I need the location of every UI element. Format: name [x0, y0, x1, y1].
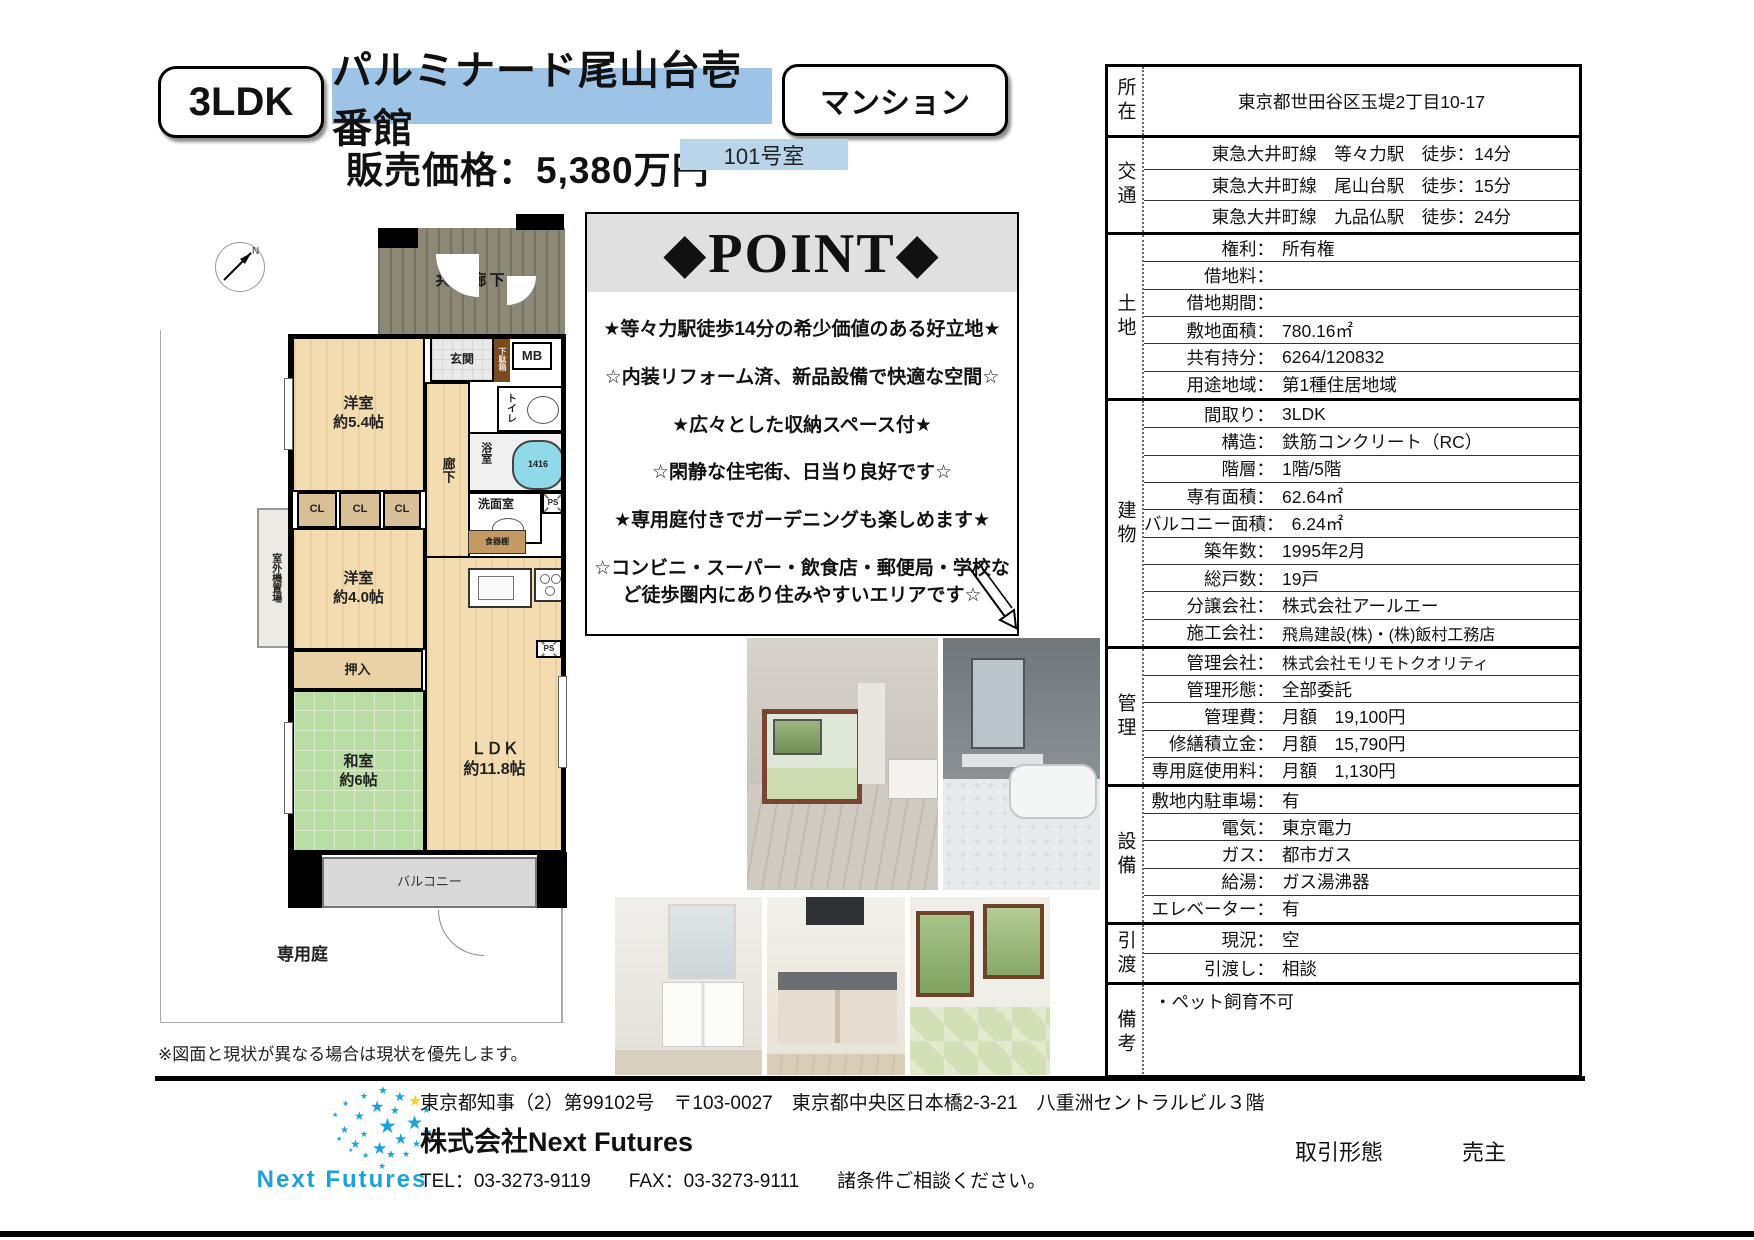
wall-column — [288, 852, 322, 908]
table-row: 分譲会社：株式会社アールエー — [1144, 591, 1579, 618]
logo-text: Next Futures — [242, 1166, 442, 1194]
row-label: 敷地面積： — [1144, 318, 1274, 343]
toilet-icon — [527, 396, 559, 424]
washitsu-label: 和室 — [343, 753, 373, 770]
star-icon: ★ — [402, 1150, 410, 1159]
flyer-page: 3LDK パルミナード尾山台壱番館 マンション 販売価格：5,380万円 101… — [0, 0, 1754, 1240]
row-value: 株式会社モリモトクオリティ — [1274, 650, 1579, 674]
closet: CL — [297, 492, 337, 528]
meter-box: MB — [512, 342, 552, 370]
spec-group-label: 建物 — [1108, 401, 1144, 646]
burner-icon — [545, 586, 555, 596]
row-label: 現況： — [1144, 927, 1274, 952]
table-row: 総戸数：19戸 — [1144, 564, 1579, 591]
spec-group-label: 引渡 — [1108, 925, 1144, 982]
photo-bathroom — [943, 638, 1100, 890]
spec-group-管理: 管理管理会社：株式会社モリモトクオリティ管理形態：全部委託管理費：月額 19,1… — [1108, 646, 1579, 784]
row-value: 株式会社アールエー — [1274, 593, 1579, 618]
row-value: 6264/120832 — [1274, 347, 1579, 368]
dish-shelf: 食器棚 — [468, 530, 526, 554]
table-row: ・ペット飼育不可 — [1144, 985, 1579, 1081]
row-text: 東急大井町線 尾山台駅 徒歩：15分 — [1212, 173, 1511, 198]
closet-label: CL — [395, 503, 410, 517]
row-label: 借地料： — [1144, 263, 1274, 288]
closet-label: CL — [310, 503, 325, 517]
footer-divider — [155, 1076, 1585, 1081]
point-item: ☆コンビニ・スーパー・飲食店・郵便局・学校など徒歩圏内にあり住みやすいエリアです… — [593, 555, 1011, 610]
photo-kitchen — [767, 897, 905, 1075]
spec-group-設備: 設備敷地内駐車場：有電気：東京電力ガス：都市ガス給湯：ガス湯沸器エレベーター：有 — [1108, 784, 1579, 922]
spec-group-label: 所在 — [1108, 67, 1144, 135]
row-label: 敷地内駐車場： — [1144, 788, 1274, 813]
photo-wash-mirror — [668, 904, 736, 979]
bedroom1-label: 洋室 — [343, 395, 373, 412]
row-label: 引渡し： — [1144, 956, 1274, 981]
point-item: ☆閑静な住宅街、日当り良好です☆ — [593, 459, 1011, 487]
row-value: ガス湯沸器 — [1274, 869, 1579, 894]
row-label: 分譲会社： — [1144, 593, 1274, 618]
row-label: 総戸数： — [1144, 566, 1274, 591]
row-label: 権利： — [1144, 236, 1274, 261]
hallway-label: 廊下 — [439, 457, 455, 483]
toilet-label: トイレ — [503, 393, 516, 423]
row-value: 鉄筋コンクリート（RC） — [1274, 429, 1579, 454]
wall-column — [537, 852, 567, 908]
photo-cabinet-doors — [778, 990, 897, 1043]
outdoor-unit-space: 室外機置場 — [257, 508, 292, 648]
kitchen-sink-counter — [468, 568, 532, 608]
point-title: ◆POINT◆ — [587, 214, 1017, 292]
row-text: 東急大井町線 九品仏駅 徒歩：24分 — [1212, 204, 1511, 229]
table-row: 管理費：月額 19,100円 — [1144, 702, 1579, 729]
table-row: 現況：空 — [1144, 925, 1579, 953]
bedroom2-size: 約4.0帖 — [333, 589, 384, 606]
remarks-text: ・ペット飼育不可 — [1154, 989, 1294, 1014]
photo-wash-floor — [615, 1050, 762, 1075]
burner-icon — [540, 574, 550, 584]
table-row: 管理形態：全部委託 — [1144, 675, 1579, 702]
row-label: 電気： — [1144, 815, 1274, 840]
deal-type-value: 売主 — [1462, 1135, 1506, 1167]
row-label: 構造： — [1144, 429, 1274, 454]
table-row: 引渡し：相談 — [1144, 953, 1579, 982]
photo-door — [858, 683, 885, 784]
row-value: 全部委託 — [1274, 677, 1579, 702]
photo-tatami-room — [910, 897, 1050, 1075]
row-value: 19戸 — [1274, 566, 1579, 591]
photo-bathtub — [1009, 764, 1097, 819]
table-row: 共有持分：6264/120832 — [1144, 343, 1579, 370]
wall-column — [378, 228, 418, 248]
oshiire-label: 押入 — [344, 662, 370, 678]
row-label: 用途地域： — [1144, 372, 1274, 397]
balcony-label: バルコニー — [397, 874, 462, 890]
star-icon: ★ — [342, 1100, 349, 1108]
photo-window — [773, 719, 822, 755]
star-icon: ★ — [378, 1086, 388, 1097]
table-row: バルコニー面積：6.24㎡ — [1144, 509, 1579, 536]
table-row: 東急大井町線 尾山台駅 徒歩：15分 — [1144, 169, 1579, 201]
compass-icon: N — [215, 242, 265, 292]
private-garden-label: 専用庭 — [277, 944, 328, 965]
floor-plan: N 共用廊下 洋室 約5.4帖 玄関 下駄箱 MB トイレ — [155, 196, 575, 1076]
table-row: ガス：都市ガス — [1144, 840, 1579, 867]
photo-tatami-floor — [767, 768, 856, 799]
star-icon: ★ — [332, 1112, 338, 1119]
row-value: 6.24㎡ — [1284, 511, 1579, 536]
property-type-badge: マンション — [782, 64, 1008, 136]
hallway: 廊下 — [425, 382, 470, 558]
row-value: 東京電力 — [1274, 815, 1579, 840]
closet-label: CL — [353, 503, 368, 517]
row-label: 借地期間： — [1144, 290, 1274, 315]
row-text: 東京都世田谷区玉堤2丁目10-17 — [1238, 89, 1485, 114]
closet: CL — [339, 492, 381, 528]
table-row: 施工会社：飛鳥建設(株)・(株)飯村工務店 — [1144, 619, 1579, 646]
row-label: 階層： — [1144, 456, 1274, 481]
row-label: ガス： — [1144, 842, 1274, 867]
dish-shelf-label: 食器棚 — [485, 537, 509, 547]
table-row: 築年数：1995年2月 — [1144, 537, 1579, 564]
star-icon: ★ — [340, 1126, 349, 1136]
star-icon: ★ — [336, 1136, 342, 1143]
row-value: 月額 15,790円 — [1274, 731, 1579, 756]
photo-tatami-mat — [910, 1007, 1050, 1075]
price: 販売価格：5,380万円 — [346, 140, 710, 194]
row-label: 施工会社： — [1144, 620, 1274, 645]
pipe-space: PS — [542, 492, 564, 514]
row-value: 780.16㎡ — [1274, 318, 1579, 343]
photo-window-left — [916, 911, 975, 996]
outdoor-unit-label: 室外機置場 — [268, 553, 281, 603]
photo-wash-cabinet — [662, 982, 744, 1046]
balcony: バルコニー — [322, 857, 537, 908]
row-label: 築年数： — [1144, 538, 1274, 563]
wall-column — [516, 214, 564, 230]
deal-type-label: 取引形態 — [1295, 1135, 1383, 1167]
star-icon: ★ — [386, 1150, 396, 1161]
row-label: エレベーター： — [1144, 896, 1274, 921]
spec-group-所在: 所在東京都世田谷区玉堤2丁目10-17 — [1108, 67, 1579, 135]
photo-tatami-alcove — [762, 709, 861, 805]
property-spec-table: 所在東京都世田谷区玉堤2丁目10-17交通東急大井町線 等々力駅 徒歩：14分東… — [1105, 64, 1582, 1078]
table-row: 修繕積立金：月額 15,790円 — [1144, 730, 1579, 757]
point-box: ◆POINT◆ ★等々力駅徒歩14分の希少価値のある好立地★☆内装リフォーム済、… — [585, 212, 1019, 636]
entrance: 玄関 — [430, 336, 494, 382]
table-row: エレベーター：有 — [1144, 895, 1579, 922]
row-label: 給湯： — [1144, 869, 1274, 894]
star-icon: ★ — [348, 1148, 353, 1154]
star-icon: ★ — [360, 1130, 368, 1139]
row-value: 都市ガス — [1274, 842, 1579, 867]
photo-counter — [888, 759, 938, 799]
row-value: 1階/5階 — [1274, 456, 1579, 481]
point-item: ★等々力駅徒歩14分の希少価値のある好立地★ — [593, 316, 1011, 344]
row-label: 修繕積立金： — [1144, 731, 1274, 756]
japanese-room: 和室 約6帖 — [292, 690, 425, 853]
spec-group-建物: 建物間取り：3LDK構造：鉄筋コンクリート（RC）階層：1階/5階専有面積：62… — [1108, 398, 1579, 646]
toilet-room: トイレ — [497, 386, 564, 432]
ps-label: PS — [544, 644, 555, 654]
row-text: 東急大井町線 等々力駅 徒歩：14分 — [1212, 141, 1511, 166]
company-name: 株式会社Next Futures — [420, 1120, 693, 1159]
point-item: ★専用庭付きでガーデニングも楽しめます★ — [593, 507, 1011, 535]
row-value: 有 — [1274, 788, 1579, 813]
point-item-list: ★等々力駅徒歩14分の希少価値のある好立地★☆内装リフォーム済、新品設備で快適な… — [587, 292, 1017, 634]
building-name: パルミナード尾山台壱番館 — [332, 68, 772, 124]
table-row: 用途地域：第1種住居地域 — [1144, 371, 1579, 398]
table-row: 東急大井町線 九品仏駅 徒歩：24分 — [1144, 200, 1579, 232]
spec-group-label: 交通 — [1108, 138, 1144, 232]
row-value: 月額 19,100円 — [1274, 704, 1579, 729]
row-value: 飛鳥建設(株)・(株)飯村工務店 — [1274, 621, 1579, 645]
washroom-label: 洗面室 — [478, 497, 514, 512]
row-label: 管理形態： — [1144, 677, 1274, 702]
star-icon: ★ — [394, 1090, 406, 1103]
window — [284, 378, 293, 450]
bedroom-5-4: 洋室 約5.4帖 — [292, 336, 425, 492]
bedroom2-label: 洋室 — [343, 570, 373, 587]
table-row: 管理会社：株式会社モリモトクオリティ — [1144, 649, 1579, 675]
table-row: 東急大井町線 等々力駅 徒歩：14分 — [1144, 138, 1579, 169]
photo-washbasin — [615, 897, 762, 1075]
row-value: 62.64㎡ — [1274, 484, 1579, 509]
closet: CL — [383, 492, 421, 528]
hand-drawn-arrow-icon — [962, 560, 1024, 640]
ps-label: PS — [548, 498, 559, 508]
point-item: ☆内装リフォーム済、新品設備で快適な空間☆ — [593, 364, 1011, 392]
table-row: 東京都世田谷区玉堤2丁目10-17 — [1144, 67, 1579, 135]
layout-badge: 3LDK — [158, 66, 324, 138]
photo-kitchen-floor — [767, 1054, 905, 1075]
bath-label: 浴室 — [478, 442, 492, 464]
window — [284, 722, 293, 814]
row-label: バルコニー面積： — [1144, 511, 1284, 536]
spec-group-引渡: 引渡現況：空引渡し：相談 — [1108, 922, 1579, 982]
room-number: 101号室 — [680, 139, 848, 170]
spec-group-交通: 交通東急大井町線 等々力駅 徒歩：14分東急大井町線 尾山台駅 徒歩：15分東急… — [1108, 135, 1579, 232]
ldk-size: 約11.8帖 — [463, 761, 525, 778]
ldk-label: ＬＤＫ — [470, 741, 518, 758]
window — [558, 676, 567, 768]
photo-range-hood — [806, 897, 864, 925]
star-icon: ★ — [360, 1092, 368, 1101]
tub-size: 1416 — [528, 459, 548, 470]
point-item: ★広々とした収納スペース付★ — [593, 412, 1011, 440]
table-row: 階層：1階/5階 — [1144, 455, 1579, 482]
row-label: 専有面積： — [1144, 484, 1274, 509]
spec-group-label: 土地 — [1108, 235, 1144, 398]
table-row: 敷地面積：780.16㎡ — [1144, 316, 1579, 343]
star-icon: ★ — [372, 1140, 387, 1157]
table-row: 敷地内駐車場：有 — [1144, 787, 1579, 813]
mb-label: MB — [522, 348, 542, 364]
bedroom-4-0: 洋室 約4.0帖 — [292, 528, 425, 650]
star-icon: ★ — [354, 1110, 365, 1122]
tel-fax-line: TEL：03-3273-9119 FAX：03-3273-9111 諸条件ご相談… — [420, 1166, 1046, 1193]
row-value: 1995年2月 — [1274, 538, 1579, 563]
spec-group-備考: 備考・ペット飼育不可 — [1108, 982, 1579, 1081]
sink-icon — [478, 576, 514, 600]
star-icon: ★ — [394, 1132, 407, 1147]
table-row: 権利：所有権 — [1144, 235, 1579, 261]
row-value: 第1種住居地域 — [1274, 372, 1579, 397]
photo-living-room — [747, 638, 938, 890]
bathroom: 浴室 1416 — [468, 432, 564, 492]
oshiire-closet: 押入 — [292, 650, 423, 690]
star-icon: ★ — [370, 1100, 384, 1116]
spec-group-label: 管理 — [1108, 649, 1144, 784]
floorplan-disclaimer: ※図面と現状が異なる場合は現状を優先します。 — [158, 1040, 528, 1065]
star-icon: ★ — [362, 1152, 369, 1160]
pipe-space: PS — [536, 640, 562, 658]
stove — [534, 568, 564, 602]
photo-counter-top — [778, 972, 897, 990]
shoe-box-label: 下駄箱 — [497, 347, 507, 371]
svg-text:N: N — [252, 246, 259, 257]
spec-group-土地: 土地権利：所有権借地料：借地期間：敷地面積：780.16㎡共有持分：6264/1… — [1108, 232, 1579, 398]
table-row: 間取り：3LDK — [1144, 401, 1579, 427]
table-row: 構造：鉄筋コンクリート（RC） — [1144, 427, 1579, 454]
row-label: 間取り： — [1144, 402, 1274, 427]
page-bottom-border — [0, 1231, 1754, 1237]
washitsu-size: 約6帖 — [339, 772, 377, 789]
spec-group-label: 備考 — [1108, 985, 1144, 1081]
table-row: 給湯：ガス湯沸器 — [1144, 868, 1579, 895]
burner-icon — [551, 574, 561, 584]
row-label: 管理費： — [1144, 704, 1274, 729]
row-value: 3LDK — [1274, 404, 1579, 425]
table-row: 電気：東京電力 — [1144, 813, 1579, 840]
table-row: 借地料： — [1144, 261, 1579, 288]
table-row: 専有面積：62.64㎡ — [1144, 482, 1579, 509]
row-label: 専用庭使用料： — [1144, 758, 1274, 783]
row-value: 有 — [1274, 896, 1579, 921]
photo-window-right — [983, 904, 1045, 979]
spec-group-label: 設備 — [1108, 787, 1144, 922]
table-row: 借地期間： — [1144, 289, 1579, 316]
photo-mirror — [971, 658, 1024, 749]
row-value: 月額 1,130円 — [1274, 758, 1579, 783]
row-label: 管理会社： — [1144, 650, 1274, 675]
bedroom1-size: 約5.4帖 — [333, 414, 384, 431]
bathtub-icon: 1416 — [512, 440, 564, 490]
row-value: 空 — [1274, 927, 1579, 952]
row-value: 所有権 — [1274, 236, 1579, 261]
table-row: 専用庭使用料：月額 1,130円 — [1144, 757, 1579, 784]
entrance-label: 玄関 — [450, 352, 474, 367]
license-line: 東京都知事（2）第99102号 〒103-0027 東京都中央区日本橋2-3-2… — [420, 1088, 1265, 1115]
shoe-box: 下駄箱 — [494, 336, 510, 382]
row-value: 相談 — [1274, 956, 1579, 981]
row-label: 共有持分： — [1144, 345, 1274, 370]
